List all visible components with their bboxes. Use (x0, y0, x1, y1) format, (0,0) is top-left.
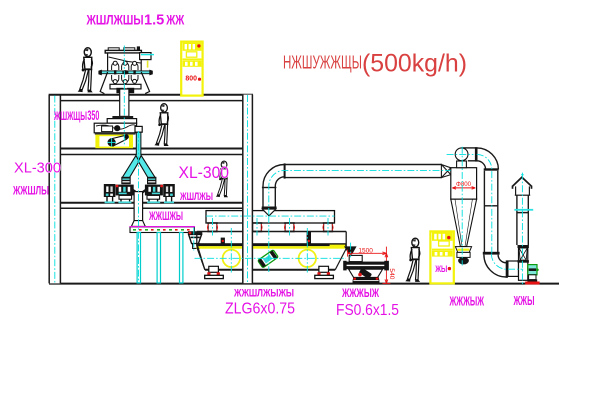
svg-text:800: 800 (185, 73, 197, 82)
svg-text:FS0.6x1.5: FS0.6x1.5 (336, 302, 399, 319)
svg-text:ЖЖЫ: ЖЖЫ (513, 293, 535, 308)
svg-text:1500: 1500 (358, 248, 373, 255)
svg-text:ЖШЖЩЫ350: ЖШЖЩЫ350 (53, 108, 99, 123)
svg-text:ЖЖЖЫЖ: ЖЖЖЫЖ (341, 286, 379, 300)
svg-text:ЖЖЖЫЖ: ЖЖЖЫЖ (449, 294, 484, 309)
svg-text:XL-300: XL-300 (179, 164, 230, 182)
svg-text:Φ800: Φ800 (456, 182, 472, 188)
svg-text:ЖЖШЛЫ: ЖЖШЛЫ (12, 184, 49, 198)
svg-text:XL-300: XL-300 (14, 160, 61, 177)
svg-text:ЖЖШЖЫ: ЖЖШЖЫ (148, 209, 183, 223)
svg-text:ЖШЛЖШЫ1.5ЖЖ: ЖШЛЖШЫ1.5ЖЖ (86, 13, 185, 29)
svg-text:ЖЫ: ЖЫ (435, 263, 448, 274)
svg-text:(500kg/h): (500kg/h) (362, 50, 467, 78)
svg-text:ЖШЛЖЫ: ЖШЛЖЫ (179, 191, 213, 203)
svg-text:ZLG6x0.75: ZLG6x0.75 (225, 300, 295, 317)
svg-text:ЖЖШЛЖЫЖЫ: ЖЖШЛЖЫЖЫ (233, 288, 294, 300)
svg-text:НЖШУЖЖЩЫ: НЖШУЖЖЩЫ (283, 53, 362, 73)
